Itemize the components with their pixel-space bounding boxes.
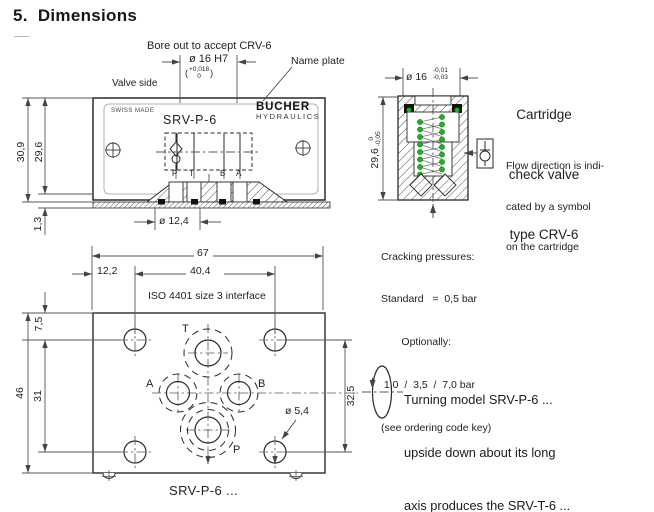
brand-logo-subtitle: HYDRAULICS (256, 113, 320, 122)
flow-note-line: cated by a symbol (506, 201, 604, 215)
bore-tolerance: ( +0,018 0 ) (185, 66, 213, 80)
flow-note-line: on the cartridge (506, 241, 604, 255)
flow-direction-note: Flow direction is indi- cated by a symbo… (506, 133, 604, 282)
dim-12-4: ø 12,4 (159, 215, 189, 227)
cartridge-dia-tol-upper: -0,01 (433, 67, 448, 74)
plan-view-drawing (22, 246, 358, 481)
side-port-p: P (172, 169, 177, 178)
side-port-b: B (220, 169, 225, 178)
cartridge-height-dim: 29,6 0 -0,05 (368, 120, 382, 180)
bore-note-label: Bore out to accept CRV-6 (147, 40, 272, 53)
dim-67: 67 (197, 247, 209, 259)
plan-view-caption: SRV-P-6 ... (169, 484, 238, 499)
side-port-a: A (236, 169, 241, 178)
cartridge-dia-tolerance: -0,01 -0,03 (433, 67, 448, 81)
side-port-t: T (189, 169, 194, 178)
dim-1-3: 1,3 (32, 212, 44, 236)
turning-note-line: upside down about its long (404, 444, 570, 462)
turning-note-line: axis produces the SRV-T-6 ... (404, 497, 570, 512)
cartridge-height-value: 29,6 (369, 148, 381, 168)
turning-note-line: Turning model SRV-P-6 ... (404, 391, 570, 409)
dim-32-5: 32,5 (345, 379, 357, 413)
dim-29-6: 29,6 (33, 135, 45, 169)
swiss-made-label: SWISS MADE (111, 108, 154, 115)
cracking-line: Standard = 0,5 bar (381, 292, 491, 306)
dim-31: 31 (32, 379, 44, 413)
cracking-line: Cracking pressures: (381, 250, 491, 264)
dimensions-page: 5. Dimensions Bore out to accept CRV-6 ø… (0, 0, 654, 512)
dim-30-9: 30,9 (15, 135, 27, 169)
tolerance-close-paren: ) (210, 68, 213, 78)
cracking-line: Optionally: (381, 335, 491, 349)
side-view-drawing (22, 55, 330, 235)
dim-46: 46 (14, 376, 26, 410)
bore-diameter-label: ø 16 H7 (189, 53, 228, 66)
flow-note-line: Flow direction is indi- (506, 160, 604, 174)
cartridge-dia-label: ø 16 (406, 71, 427, 83)
cartridge-dia-tol-lower: -0,03 (433, 74, 448, 81)
plan-port-p: P (233, 444, 240, 457)
iso-interface-label: ISO 4401 size 3 interface (148, 290, 266, 302)
mounting-surface-strip (93, 202, 330, 208)
tolerance-open-paren: ( (185, 68, 188, 78)
dim-7-5: 7,5 (33, 310, 45, 338)
tolerance-stack: +0,018 0 (189, 66, 209, 80)
tolerance-lower: 0 (197, 73, 201, 80)
page-title: 5. Dimensions (13, 6, 137, 26)
model-label: SRV-P-6 (163, 113, 217, 127)
cartridge-height-tol-lower: -0,05 (375, 131, 382, 146)
tolerance-upper: +0,018 (189, 66, 209, 73)
cartridge-drawing (378, 68, 493, 218)
plan-port-b: B (258, 378, 265, 391)
name-plate-label: Name plate (291, 55, 345, 67)
dim-12-2: 12,2 (97, 265, 117, 277)
cartridge-title-line: Cartridge (500, 105, 588, 125)
dim-5-4: ø 5,4 (285, 405, 309, 417)
turning-note: Turning model SRV-P-6 ... upside down ab… (404, 355, 570, 512)
plan-port-a: A (146, 378, 153, 391)
cartridge-height-tol-upper: 0 (368, 137, 375, 141)
cartridge-height-tolerance: 0 -0,05 (368, 131, 382, 146)
valve-side-label: Valve side (112, 78, 157, 90)
plan-port-t: T (182, 323, 189, 336)
flow-direction-symbol (477, 139, 493, 168)
dim-40-4: 40,4 (190, 265, 210, 277)
